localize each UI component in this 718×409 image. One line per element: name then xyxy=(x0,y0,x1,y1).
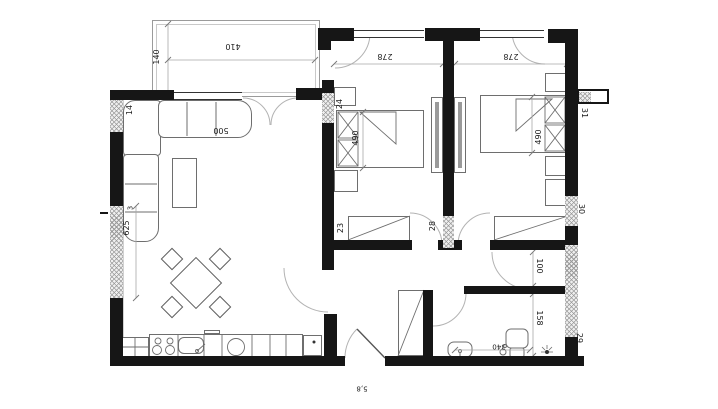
wall-mark-31: 31 xyxy=(580,108,588,118)
dim-bedroom1-width: 278 xyxy=(377,52,392,60)
hatch-right-low xyxy=(565,245,578,337)
wall-mark-30: 30 xyxy=(577,204,585,214)
curtain-arc-left xyxy=(243,98,270,125)
dim-bed1: 490 xyxy=(352,130,360,145)
sofa-dividers xyxy=(125,102,216,212)
shower-head xyxy=(545,350,549,354)
plan-linework xyxy=(0,0,718,409)
pillar-bedroom1-corner-lip xyxy=(318,41,331,50)
fridge-dot xyxy=(313,341,316,344)
wall-tick-exterior xyxy=(100,212,108,214)
stove-burner xyxy=(167,338,173,344)
dining-chair xyxy=(209,248,230,269)
wall-bottom-left xyxy=(110,356,345,366)
wall-bathroom-north xyxy=(464,286,568,294)
hatch-left-top xyxy=(110,100,123,132)
dim-ticks xyxy=(133,21,570,359)
wall-hall-west-lower xyxy=(324,314,337,358)
bathroom-door-arc xyxy=(433,293,466,326)
stove-burner xyxy=(166,346,175,355)
wardrobe1-diagonal xyxy=(348,216,410,240)
window-bedroom1 xyxy=(354,30,424,38)
wall-bedroom1-south xyxy=(322,240,412,250)
kitchen-basin xyxy=(228,339,245,356)
dim-left-wall-seg: 3 xyxy=(128,206,135,210)
corridor-door-arc xyxy=(492,252,529,289)
dim-terrace-depth: 140 xyxy=(153,49,161,64)
wall-mark-14: 14 xyxy=(126,105,134,115)
wall-bottom-right xyxy=(385,356,584,366)
wall-top-right-corner xyxy=(548,29,578,43)
dim-bath-width: 340 xyxy=(492,343,505,350)
dim-corridor: 100 xyxy=(535,258,543,273)
dim-bedroom2-width: 278 xyxy=(503,52,518,60)
bed1-duvet-fold xyxy=(360,112,396,144)
wall-mark-24: 24 xyxy=(336,99,344,109)
dim-bath-length: 158 xyxy=(535,310,543,325)
window-living xyxy=(174,92,242,100)
living-door-arc xyxy=(284,268,328,312)
dim-left-wall: 625 xyxy=(123,220,131,235)
dim-terrace-width: 410 xyxy=(225,42,240,50)
stove-burner xyxy=(153,346,162,355)
dining-chair xyxy=(161,248,182,269)
wall-bedroom2-south xyxy=(490,240,568,250)
wall-mark-23: 23 xyxy=(337,223,345,233)
wall-hall-west-upper xyxy=(322,248,334,270)
window-bedroom2 xyxy=(480,30,544,38)
entry-door-leaf xyxy=(357,329,385,358)
wall-bathroom-west xyxy=(423,290,433,356)
pillar-bedroom1-corner xyxy=(318,28,354,41)
hatch-partition xyxy=(443,216,454,248)
entry-level-mark: 5,8 xyxy=(356,385,367,392)
bedroom2-door-arc xyxy=(458,213,490,245)
stove-burner xyxy=(155,338,161,344)
dining-chair xyxy=(209,296,230,317)
dining-table xyxy=(171,258,222,309)
hatch-protrusion xyxy=(579,92,591,102)
wall-mark-28: 28 xyxy=(429,221,437,231)
toilet-bowl xyxy=(506,329,528,348)
floor-plan: 410 140 278 278 500 490 490 625 3 100 15… xyxy=(0,0,718,409)
wall-mark-29: 29 xyxy=(575,333,583,343)
hatch-bedroom1-west xyxy=(322,93,334,123)
dim-bed2: 490 xyxy=(535,129,543,144)
dim-sofa: 500 xyxy=(213,126,228,134)
dining-chair xyxy=(161,296,182,317)
cabinet-grid-lines xyxy=(122,337,149,358)
counter-dividers xyxy=(178,334,286,357)
hall-wardrobe-diagonal xyxy=(398,290,424,356)
curtain-arc-right xyxy=(271,98,298,125)
wardrobe2-diagonal xyxy=(494,216,568,240)
entry-door-arc xyxy=(345,329,357,358)
